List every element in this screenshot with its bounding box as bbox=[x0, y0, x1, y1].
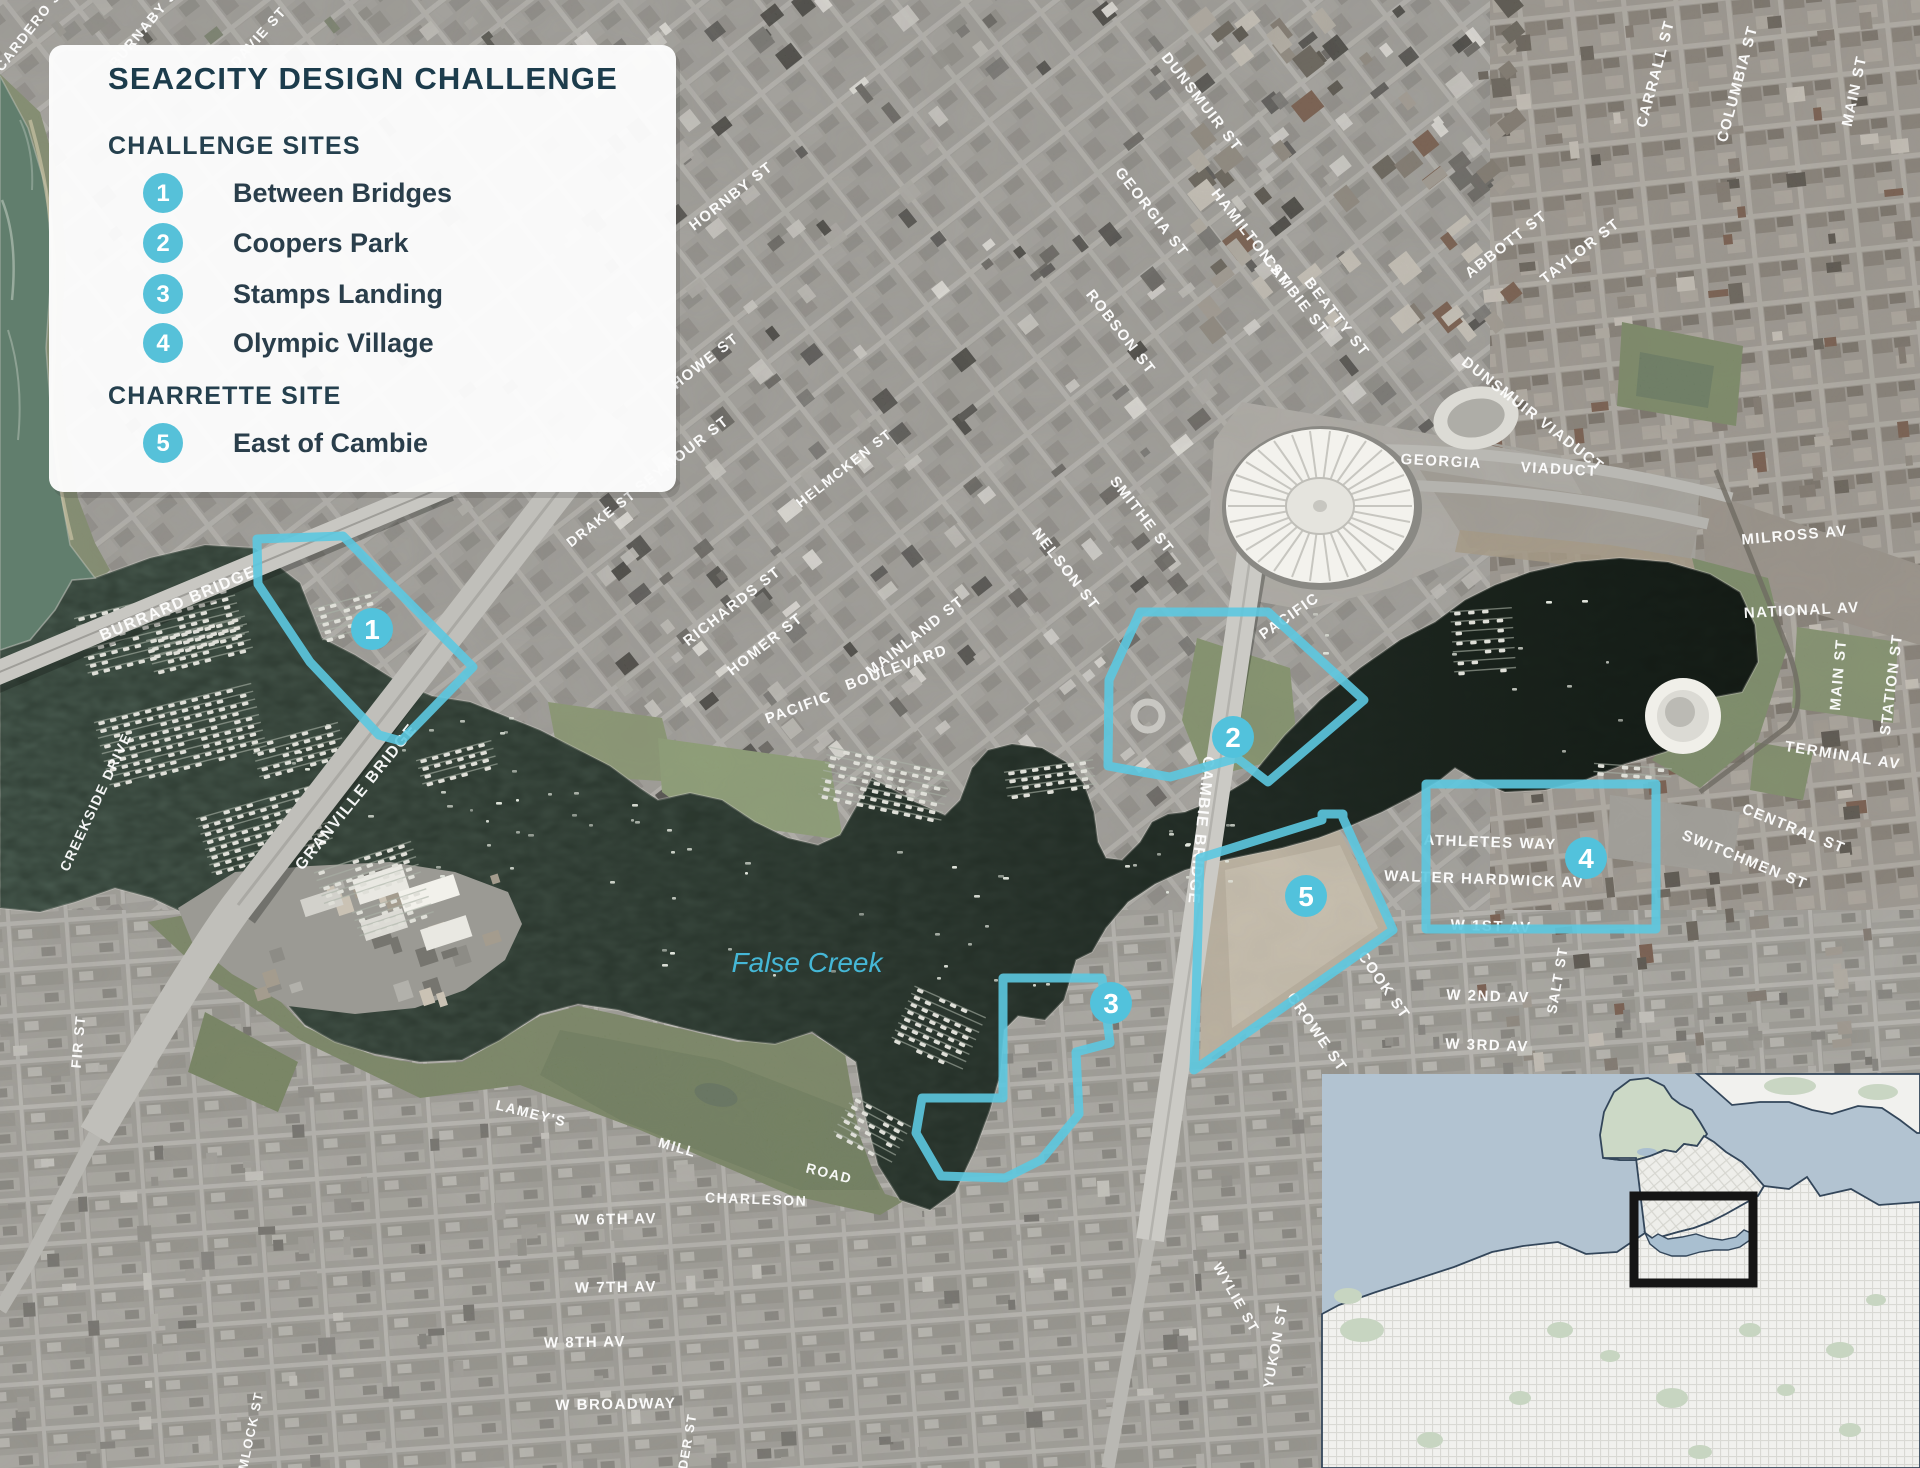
svg-text:False Creek: False Creek bbox=[732, 947, 885, 978]
svg-text:W 2ND AV: W 2ND AV bbox=[1446, 987, 1530, 1007]
svg-text:1: 1 bbox=[156, 180, 169, 207]
svg-text:Between Bridges: Between Bridges bbox=[233, 178, 452, 208]
svg-text:Stamps Landing: Stamps Landing bbox=[233, 279, 443, 309]
svg-text:3: 3 bbox=[156, 281, 169, 308]
svg-text:4: 4 bbox=[1578, 843, 1594, 874]
svg-text:East of Cambie: East of Cambie bbox=[233, 428, 428, 458]
svg-text:W BROADWAY: W BROADWAY bbox=[555, 1395, 676, 1414]
svg-text:2: 2 bbox=[1225, 722, 1241, 753]
svg-text:W 3RD AV: W 3RD AV bbox=[1445, 1036, 1529, 1056]
svg-text:SEA2CITY DESIGN CHALLENGE: SEA2CITY DESIGN CHALLENGE bbox=[108, 61, 618, 96]
svg-text:4: 4 bbox=[156, 330, 170, 357]
svg-text:CHALLENGE SITES: CHALLENGE SITES bbox=[108, 132, 361, 160]
svg-text:5: 5 bbox=[1298, 881, 1314, 912]
svg-text:W 8TH AV: W 8TH AV bbox=[544, 1333, 626, 1351]
svg-text:5: 5 bbox=[156, 430, 169, 457]
svg-text:1: 1 bbox=[364, 614, 380, 645]
svg-text:Coopers Park: Coopers Park bbox=[233, 228, 410, 258]
svg-text:W 7TH AV: W 7TH AV bbox=[575, 1278, 657, 1296]
svg-text:3: 3 bbox=[1103, 988, 1119, 1019]
svg-text:CHARRETTE SITE: CHARRETTE SITE bbox=[108, 382, 341, 410]
svg-text:2: 2 bbox=[156, 230, 169, 257]
svg-text:Olympic Village: Olympic Village bbox=[233, 328, 434, 358]
svg-text:W 6TH AV: W 6TH AV bbox=[575, 1210, 657, 1228]
